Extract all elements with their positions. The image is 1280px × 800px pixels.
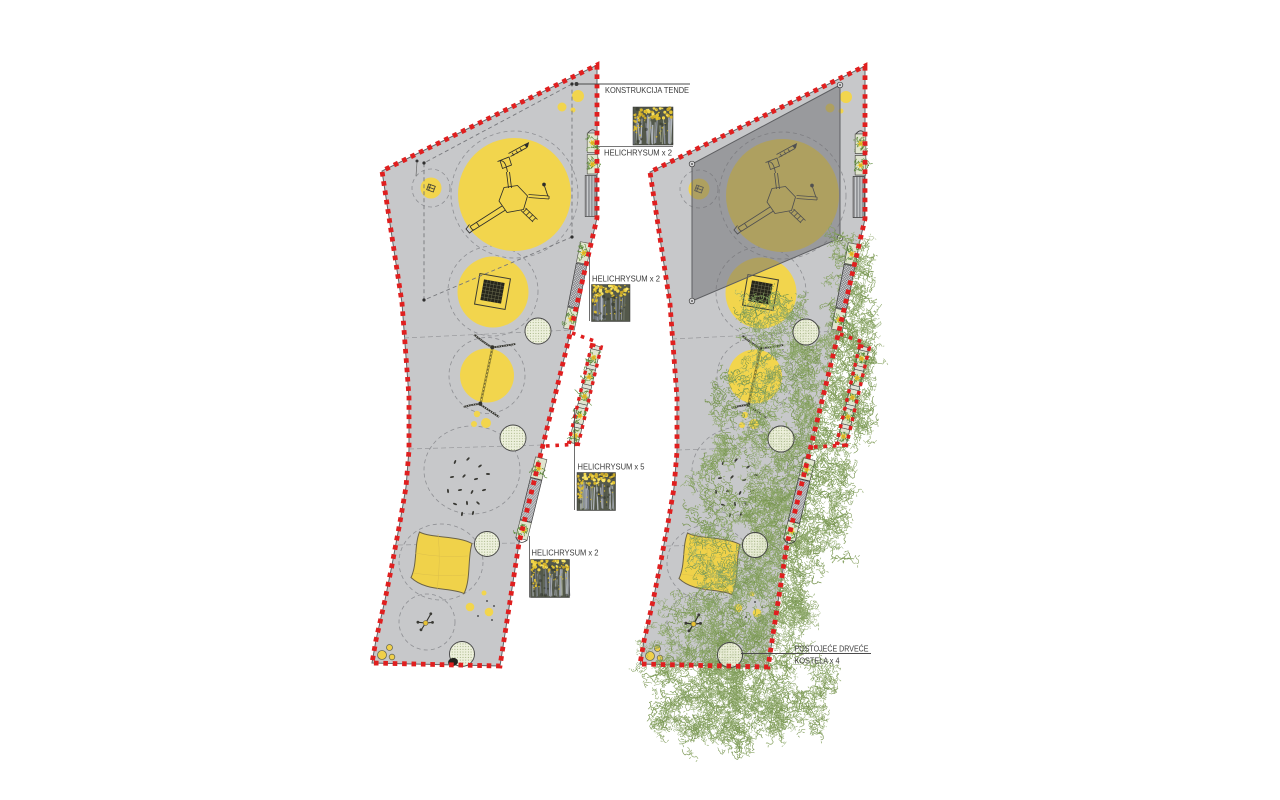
svg-text:HELICHRYSUM x 2: HELICHRYSUM x 2	[592, 275, 660, 284]
svg-text:KONSTRUKCIJA TENDE: KONSTRUKCIJA TENDE	[605, 86, 689, 95]
svg-text:KOSTELA x 4: KOSTELA x 4	[795, 657, 840, 666]
svg-text:POSTOJEĆE DRVEĆE: POSTOJEĆE DRVEĆE	[795, 644, 869, 654]
svg-text:HELICHRYSUM x 2: HELICHRYSUM x 2	[532, 549, 599, 558]
svg-text:HELICHRYSUM x 5: HELICHRYSUM x 5	[578, 463, 645, 472]
svg-text:HELICHRYSUM x 2: HELICHRYSUM x 2	[604, 149, 672, 158]
